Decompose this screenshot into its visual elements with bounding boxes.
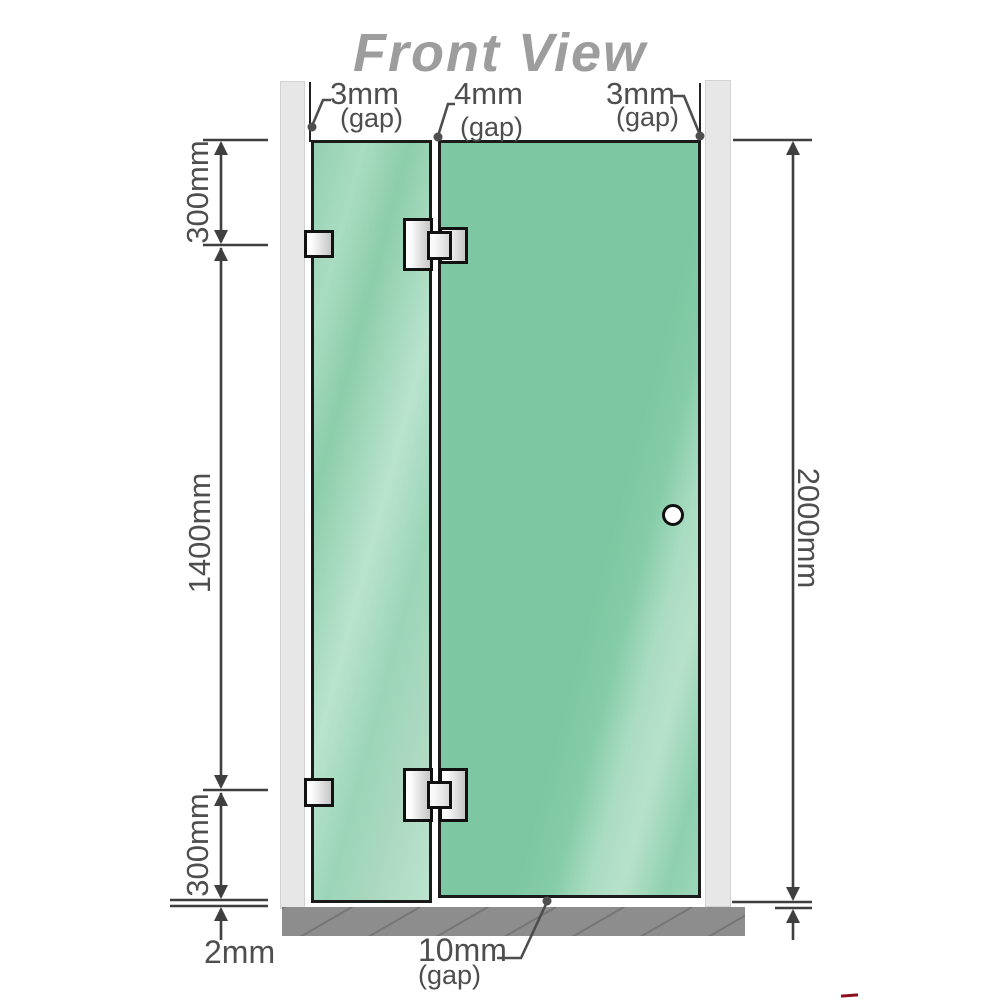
wall-bracket-bottom bbox=[304, 778, 334, 807]
floor-base bbox=[282, 907, 745, 936]
left-middle-dimension-label: 1400mm bbox=[182, 473, 218, 594]
right-wall-strip bbox=[705, 80, 731, 907]
bottom-hinge-knuckle bbox=[427, 781, 452, 809]
corner-red-mark bbox=[841, 993, 858, 997]
door-edge-extension bbox=[699, 83, 701, 142]
top-left-gap-note: (gap) bbox=[340, 103, 403, 134]
top-middle-gap-value: 4mm bbox=[454, 76, 523, 112]
left-wall-strip bbox=[280, 81, 305, 909]
door-knob bbox=[662, 504, 684, 526]
fixed-panel-edge-extension bbox=[309, 82, 311, 142]
page-title: Front View bbox=[0, 22, 1000, 84]
bottom-door-gap-note: (gap) bbox=[418, 960, 481, 991]
left-upper-dimension-label: 300mm bbox=[180, 140, 216, 243]
left-lower-dimension-label: 300mm bbox=[180, 793, 216, 896]
top-right-gap-note: (gap) bbox=[616, 102, 679, 133]
right-height-dimension-label: 2000mm bbox=[790, 468, 826, 589]
wall-bracket-top bbox=[304, 230, 334, 258]
bottom-floor-gap-label: 2mm bbox=[204, 934, 275, 971]
door-glass-panel bbox=[438, 140, 701, 898]
top-hinge-knuckle bbox=[427, 231, 452, 260]
top-middle-gap-note: (gap) bbox=[460, 112, 523, 143]
front-view-diagram: Front View bbox=[0, 0, 1000, 1000]
